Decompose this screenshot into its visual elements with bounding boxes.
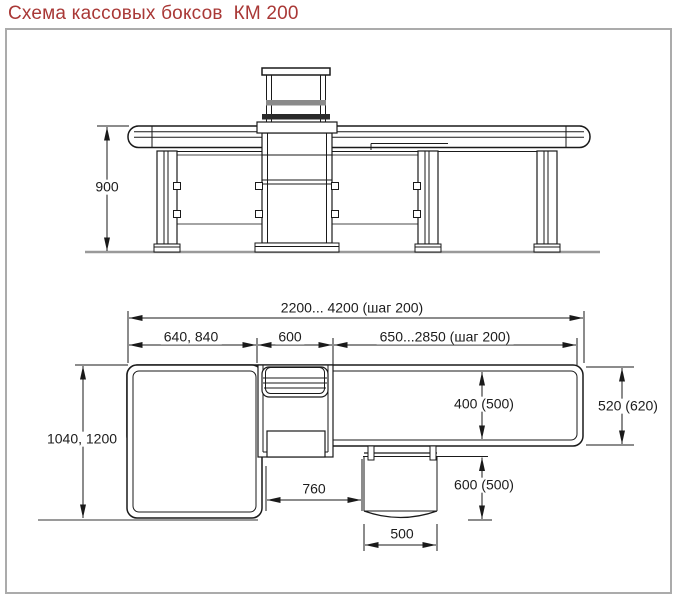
label-seat-recess-depth: 600 (500) xyxy=(451,478,517,493)
counter-top xyxy=(128,126,590,148)
leg-left xyxy=(154,151,180,252)
plan-view xyxy=(38,311,634,551)
leg-middle xyxy=(415,151,441,252)
keyboard-block xyxy=(267,431,325,457)
left-table-block xyxy=(127,365,262,518)
superstructure-frame xyxy=(262,68,330,122)
label-overall-length: 2200... 4200 (шаг 200) xyxy=(278,301,426,316)
side-panel-right xyxy=(332,155,418,224)
cash-cabinet xyxy=(255,122,339,252)
seat-bracket-right xyxy=(430,446,436,460)
drawing-page: Схема кассовых боксов КМ 200 xyxy=(0,0,680,600)
mid-crossbar xyxy=(266,100,326,106)
elevation-view xyxy=(85,68,600,252)
label-seat-width: 500 xyxy=(387,527,416,542)
label-cash-module-length: 600 xyxy=(275,330,304,345)
leg-right xyxy=(534,151,560,252)
seat-bracket-left xyxy=(368,446,374,460)
label-belt-width: 400 (500) xyxy=(451,397,517,412)
label-end-depth: 520 (620) xyxy=(595,399,661,414)
lower-crossbar xyxy=(262,114,330,120)
side-panel-left xyxy=(177,155,262,224)
label-belt-length: 650...2850 (шаг 200) xyxy=(377,330,514,345)
register-recess xyxy=(262,367,328,397)
label-left-table-length: 640, 840 xyxy=(161,330,222,345)
label-height-900: 900 xyxy=(92,180,121,195)
label-operator-clearance: 760 xyxy=(299,482,328,497)
label-overall-depth: 1040, 1200 xyxy=(44,432,120,447)
